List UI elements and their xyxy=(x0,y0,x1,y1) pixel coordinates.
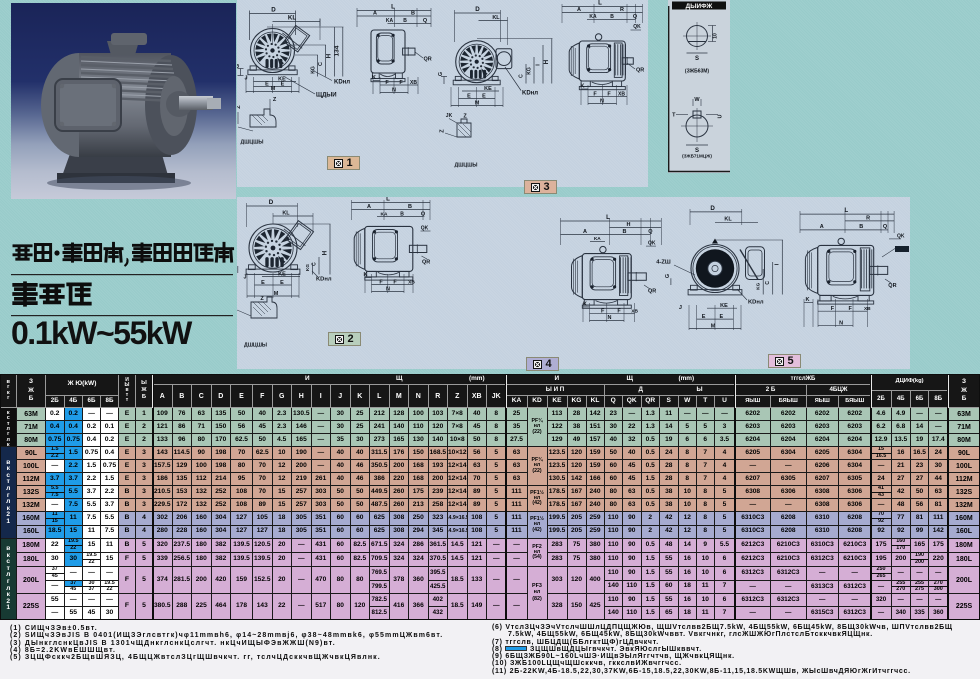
svg-text:Q: Q xyxy=(883,224,888,230)
svg-text:QR: QR xyxy=(888,283,896,289)
svg-text:D: D xyxy=(269,199,274,206)
svg-text:KDнл: KDнл xyxy=(748,299,764,305)
svg-text:KL: KL xyxy=(288,15,296,22)
svg-text:QK: QK xyxy=(421,226,429,232)
svg-text:Z: Z xyxy=(440,129,446,133)
svg-text:L: L xyxy=(598,0,602,7)
svg-text:KL: KL xyxy=(492,15,500,21)
svg-text:(ЗЖБ63M): (ЗЖБ63M) xyxy=(685,69,710,75)
svg-text:4-ZШ: 4-ZШ xyxy=(656,259,671,265)
svg-text:Q: Q xyxy=(421,211,426,217)
svg-text:A: A xyxy=(577,7,581,13)
svg-text:S: S xyxy=(695,56,699,62)
svg-text:XB: XB xyxy=(410,80,417,86)
svg-text:I: I xyxy=(775,263,781,265)
svg-text:D: D xyxy=(271,7,276,14)
svg-text:R: R xyxy=(620,7,624,13)
svg-text:K: K xyxy=(372,75,376,81)
svg-text:E: E xyxy=(280,280,284,286)
svg-text:B: B xyxy=(403,18,407,24)
svg-text:N: N xyxy=(839,320,843,326)
svg-text:ДШЦШЫ: ДШЦШЫ xyxy=(244,343,267,349)
svg-text:Z: Z xyxy=(260,296,264,302)
svg-text:E: E xyxy=(261,280,265,286)
svg-text:ДШЦШЫ: ДШЦШЫ xyxy=(455,163,478,169)
svg-text:Q: Q xyxy=(648,229,653,235)
svg-text:ЩДЫИ: ЩДЫИ xyxy=(316,93,337,99)
svg-text:(ЗЖБ71MЦЖ): (ЗЖБ71MЦЖ) xyxy=(682,154,712,159)
svg-text:10: 10 xyxy=(713,33,719,39)
svg-text:H: H xyxy=(543,59,550,64)
svg-text:I: I xyxy=(536,64,542,66)
svg-text:M: M xyxy=(274,291,279,297)
svg-text:B: B xyxy=(623,229,627,235)
svg-text:E: E xyxy=(467,94,471,100)
svg-text:XB: XB xyxy=(618,92,625,98)
svg-text:K: K xyxy=(364,272,368,278)
svg-text:K: K xyxy=(583,301,587,307)
svg-text:J: J xyxy=(679,305,682,311)
svg-text:KDнл: KDнл xyxy=(316,277,332,283)
svg-text:QR: QR xyxy=(636,68,644,74)
svg-text:K: K xyxy=(806,297,810,303)
svg-text:E: E xyxy=(281,82,285,88)
svg-text:E: E xyxy=(265,82,269,88)
svg-text:B: B xyxy=(859,224,863,230)
svg-text:M: M xyxy=(271,86,276,92)
svg-text:KE: KE xyxy=(278,272,286,278)
svg-text:ДШЦШЫ: ДШЦШЫ xyxy=(241,140,264,146)
svg-text:C: C xyxy=(519,74,525,78)
svg-text:QR: QR xyxy=(424,57,432,63)
svg-text:Z: Z xyxy=(273,97,277,103)
svg-text:B: B xyxy=(610,14,614,20)
svg-text:U: U xyxy=(718,114,724,118)
svg-text:KE: KE xyxy=(484,86,492,92)
svg-text:H: H xyxy=(627,222,631,228)
svg-text:KDнл: KDнл xyxy=(334,80,350,86)
svg-text:D: D xyxy=(710,205,715,212)
svg-text:B: B xyxy=(411,11,415,17)
svg-text:E: E xyxy=(719,314,723,320)
svg-text:XB: XB xyxy=(408,279,415,285)
svg-text:N: N xyxy=(608,315,612,321)
svg-text:KDнл: KDнл xyxy=(522,91,538,97)
svg-text:A: A xyxy=(820,224,824,230)
svg-text:JK: JK xyxy=(446,113,453,119)
svg-text:Z: Z xyxy=(237,306,238,310)
svg-text:KA: KA xyxy=(594,236,601,242)
svg-text:XB: XB xyxy=(864,306,871,312)
svg-text:ДЫИФЖ: ДЫИФЖ xyxy=(686,3,713,10)
svg-text:XB: XB xyxy=(631,308,638,314)
svg-text:KA: KA xyxy=(386,18,394,24)
svg-text:KG: KG xyxy=(311,66,317,74)
svg-text:D: D xyxy=(475,6,480,13)
svg-text:A: A xyxy=(583,229,587,235)
svg-text:B: B xyxy=(408,204,412,210)
svg-text:KG: KG xyxy=(756,282,761,289)
svg-text:QK: QK xyxy=(897,233,905,239)
svg-text:W: W xyxy=(694,97,700,103)
svg-text:C: C xyxy=(318,62,324,66)
svg-text:R: R xyxy=(866,215,870,221)
svg-text:E: E xyxy=(482,94,486,100)
svg-text:M: M xyxy=(475,101,480,107)
svg-text:L: L xyxy=(386,197,390,203)
svg-text:Z: Z xyxy=(237,105,242,109)
svg-text:Q: Q xyxy=(423,18,428,24)
svg-text:QK: QK xyxy=(633,24,641,30)
svg-text:KE: KE xyxy=(720,303,728,309)
svg-text:KA: KA xyxy=(589,14,597,20)
svg-text:KG: KG xyxy=(527,67,533,75)
svg-text:QR: QR xyxy=(422,260,430,266)
svg-text:KG: KG xyxy=(305,264,310,271)
svg-text:QR: QR xyxy=(648,289,656,295)
svg-text:KL: KL xyxy=(724,216,732,222)
svg-text:A: A xyxy=(367,204,371,210)
svg-text:A: A xyxy=(373,11,377,17)
svg-text:G: G xyxy=(665,274,671,278)
svg-text:C: C xyxy=(765,281,771,285)
svg-text:G: G xyxy=(438,72,444,76)
svg-text:H: H xyxy=(326,53,333,58)
svg-text:KL: KL xyxy=(282,211,290,217)
svg-text:H: H xyxy=(322,250,329,255)
svg-text:G: G xyxy=(237,64,241,68)
svg-text:G: G xyxy=(237,262,239,266)
svg-text:QK: QK xyxy=(648,241,656,247)
svg-text:E: E xyxy=(702,314,706,320)
svg-text:J: J xyxy=(243,275,246,281)
svg-text:N: N xyxy=(600,99,604,105)
